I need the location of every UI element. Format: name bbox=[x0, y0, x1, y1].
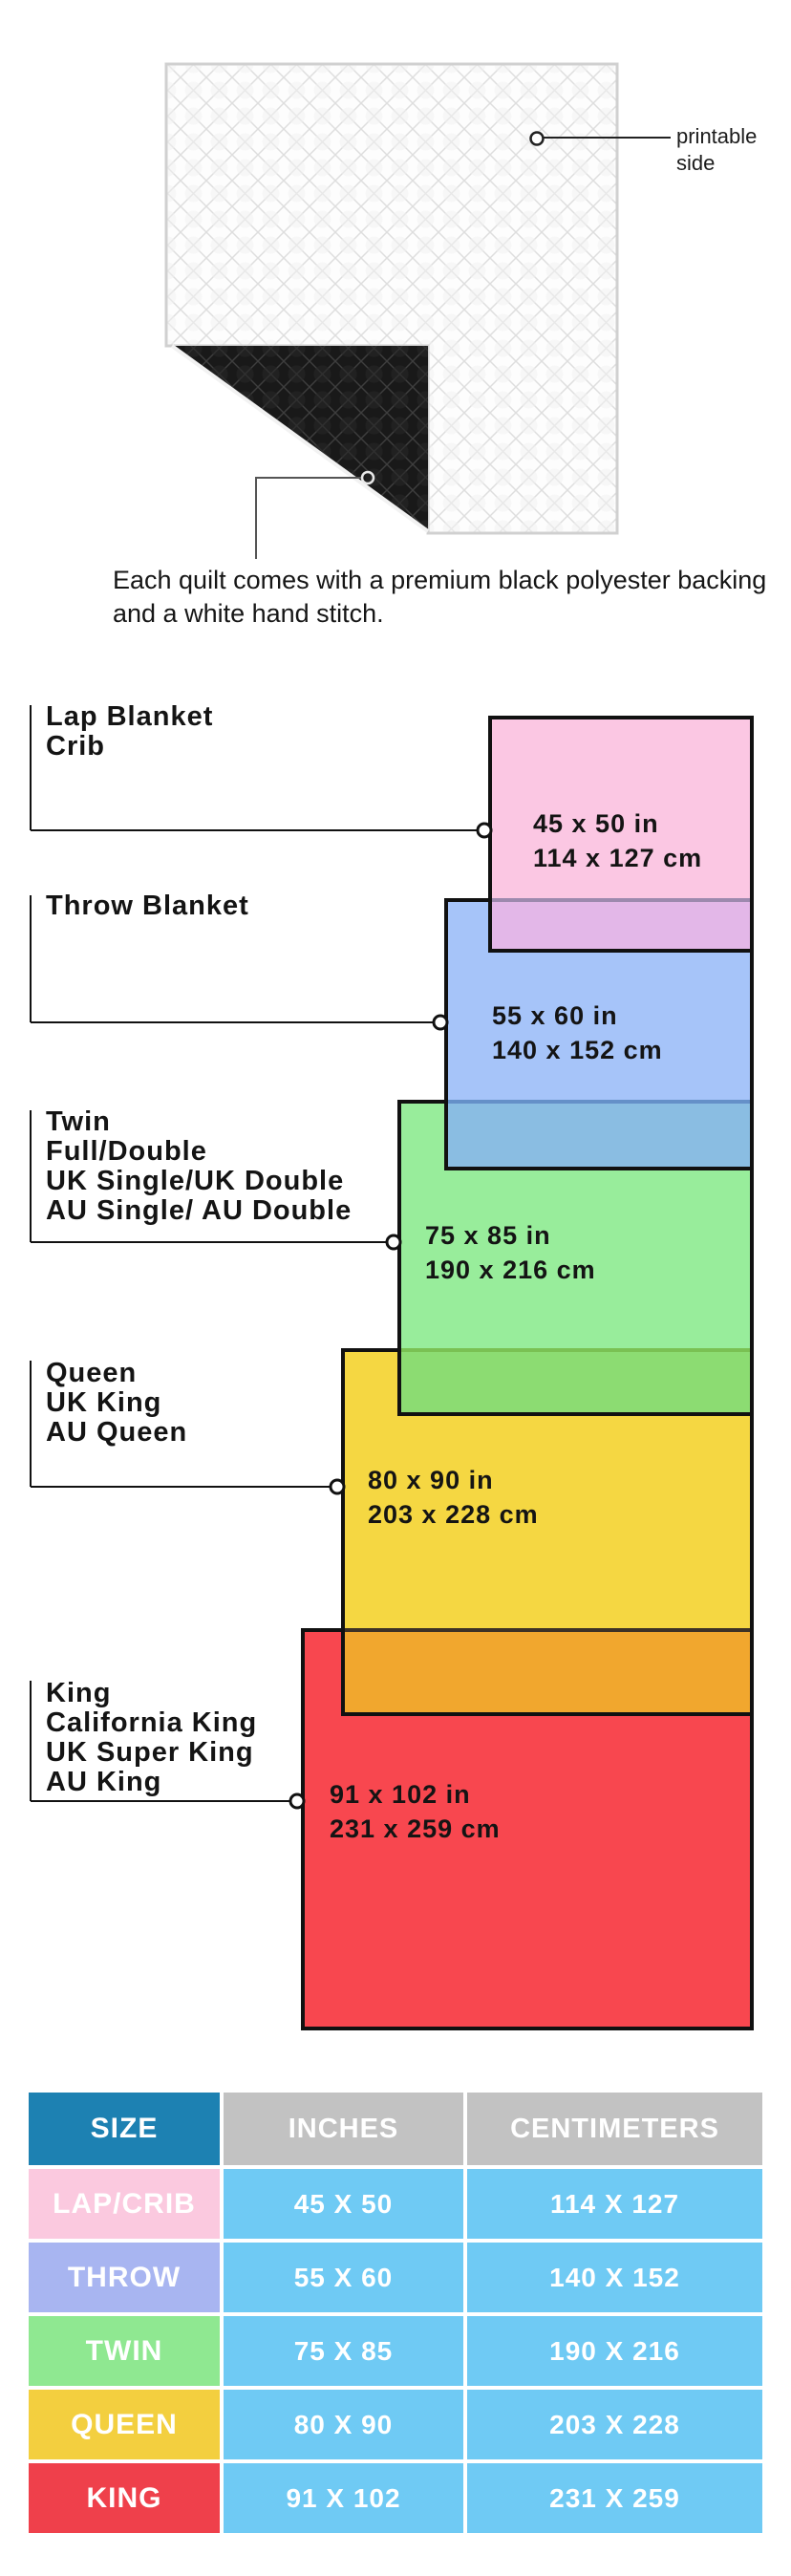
dimension-cm: 190 x 216 cm bbox=[425, 1253, 596, 1287]
row-cm: 190 X 216 bbox=[467, 2316, 762, 2386]
table-row: LAP/CRIB 45 X 50 114 X 127 bbox=[29, 2169, 762, 2239]
row-inches: 91 X 102 bbox=[224, 2463, 463, 2533]
group-label-line: UK King bbox=[46, 1388, 187, 1418]
dimension-inches: 45 x 50 in bbox=[533, 806, 702, 841]
quilt-illustration bbox=[166, 64, 671, 559]
group-label-line: Queen bbox=[46, 1359, 187, 1388]
printable-side-label: printable side bbox=[676, 123, 786, 177]
dimension-cm: 114 x 127 cm bbox=[533, 841, 702, 875]
dimension-cm: 231 x 259 cm bbox=[330, 1812, 501, 1846]
king-group-label: King California King UK Super King AU Ki… bbox=[46, 1679, 257, 1797]
lap-throw-overlap bbox=[490, 900, 752, 951]
group-label-line: UK Super King bbox=[46, 1738, 257, 1768]
size-guide-infographic: printable side Each quilt comes with a p… bbox=[0, 0, 791, 2576]
quilt-description: Each quilt comes with a premium black po… bbox=[113, 564, 767, 631]
row-inches: 80 X 90 bbox=[224, 2390, 463, 2459]
queen-dot-icon bbox=[331, 1480, 344, 1493]
queen-group-label: Queen UK King AU Queen bbox=[46, 1359, 187, 1448]
group-label-line: Full/Double bbox=[46, 1137, 352, 1167]
dimension-inches: 91 x 102 in bbox=[330, 1777, 501, 1812]
throw-dimensions: 55 x 60 in 140 x 152 cm bbox=[492, 998, 663, 1067]
group-label-line: UK Single/UK Double bbox=[46, 1167, 352, 1196]
row-label: KING bbox=[29, 2463, 220, 2533]
row-label: TWIN bbox=[29, 2316, 220, 2386]
table-row: QUEEN 80 X 90 203 X 228 bbox=[29, 2390, 762, 2459]
table-row: TWIN 75 X 85 190 X 216 bbox=[29, 2316, 762, 2386]
group-label-line: Throw Blanket bbox=[46, 891, 249, 921]
row-label: QUEEN bbox=[29, 2390, 220, 2459]
lap-dot-icon bbox=[478, 824, 491, 837]
group-label-line: Lap Blanket bbox=[46, 702, 213, 732]
queen-dimensions: 80 x 90 in 203 x 228 cm bbox=[368, 1463, 539, 1532]
queen-king-overlap bbox=[343, 1630, 752, 1714]
king-dimensions: 91 x 102 in 231 x 259 cm bbox=[330, 1777, 501, 1846]
throw-group-label: Throw Blanket bbox=[46, 891, 249, 921]
group-label-line: Crib bbox=[46, 732, 213, 762]
table-header-row: SIZE INCHES CENTIMETERS bbox=[29, 2093, 762, 2165]
group-label-line: Twin bbox=[46, 1107, 352, 1137]
header-inches: INCHES bbox=[224, 2093, 463, 2165]
table-row: KING 91 X 102 231 X 259 bbox=[29, 2463, 762, 2533]
dimension-inches: 55 x 60 in bbox=[492, 998, 663, 1033]
row-inches: 45 X 50 bbox=[224, 2169, 463, 2239]
twin-dimensions: 75 x 85 in 190 x 216 cm bbox=[425, 1218, 596, 1287]
throw-dot-icon bbox=[434, 1016, 447, 1029]
king-dot-icon bbox=[290, 1794, 304, 1808]
lap-group-label: Lap Blanket Crib bbox=[46, 702, 213, 762]
dimension-inches: 75 x 85 in bbox=[425, 1218, 596, 1253]
dimension-cm: 203 x 228 cm bbox=[368, 1497, 539, 1532]
row-cm: 140 X 152 bbox=[467, 2243, 762, 2312]
size-table: SIZE INCHES CENTIMETERS LAP/CRIB 45 X 50… bbox=[29, 2093, 762, 2533]
row-label: LAP/CRIB bbox=[29, 2169, 220, 2239]
group-label-line: AU Single/ AU Double bbox=[46, 1196, 352, 1226]
header-size: SIZE bbox=[29, 2093, 220, 2165]
table-row: THROW 55 X 60 140 X 152 bbox=[29, 2243, 762, 2312]
group-label-line: King bbox=[46, 1679, 257, 1708]
row-inches: 75 X 85 bbox=[224, 2316, 463, 2386]
group-label-line: California King bbox=[46, 1708, 257, 1738]
group-label-line: AU King bbox=[46, 1768, 257, 1797]
header-centimeters: CENTIMETERS bbox=[467, 2093, 762, 2165]
row-cm: 231 X 259 bbox=[467, 2463, 762, 2533]
throw-twin-overlap bbox=[446, 1102, 752, 1169]
dimension-inches: 80 x 90 in bbox=[368, 1463, 539, 1497]
backing-callout-line bbox=[256, 478, 362, 559]
row-cm: 114 X 127 bbox=[467, 2169, 762, 2239]
row-label: THROW bbox=[29, 2243, 220, 2312]
group-label-line: AU Queen bbox=[46, 1418, 187, 1448]
printable-side-dot-icon bbox=[531, 133, 544, 145]
twin-queen-overlap bbox=[399, 1350, 752, 1414]
twin-dot-icon bbox=[387, 1235, 400, 1249]
twin-group-label: Twin Full/Double UK Single/UK Double AU … bbox=[46, 1107, 352, 1226]
row-cm: 203 X 228 bbox=[467, 2390, 762, 2459]
lap-dimensions: 45 x 50 in 114 x 127 cm bbox=[533, 806, 702, 875]
dimension-cm: 140 x 152 cm bbox=[492, 1033, 663, 1067]
row-inches: 55 X 60 bbox=[224, 2243, 463, 2312]
